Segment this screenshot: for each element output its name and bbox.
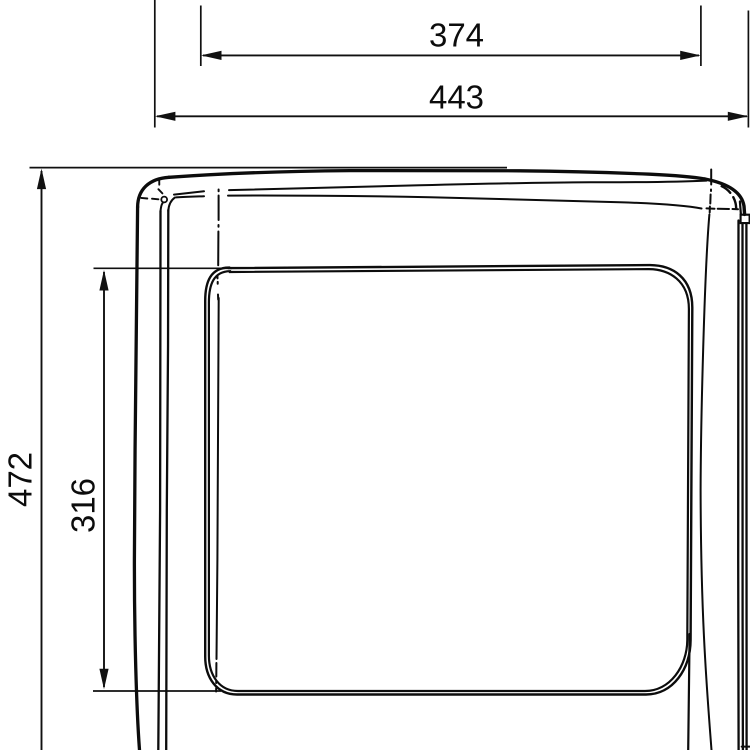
svg-text:316: 316 (65, 478, 102, 533)
svg-text:374: 374 (429, 17, 484, 54)
svg-text:472: 472 (2, 452, 39, 507)
svg-text:443: 443 (429, 79, 484, 116)
